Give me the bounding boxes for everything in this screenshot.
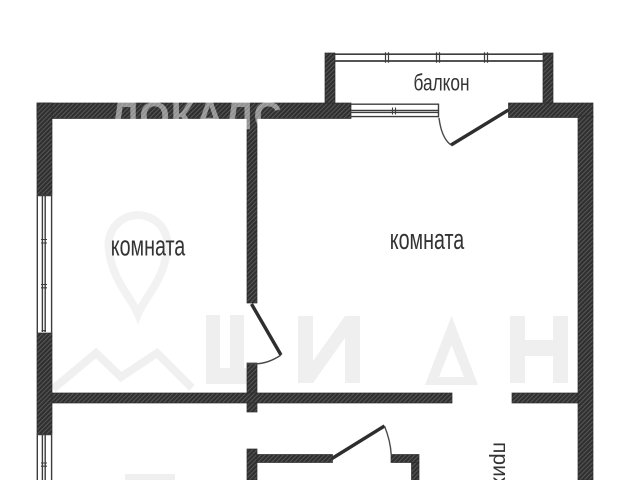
svg-text:ЛОКАЛС: ЛОКАЛС [111,95,283,138]
svg-text:балкон: балкон [414,71,470,96]
svg-text:комната: комната [390,224,465,256]
svg-text:прихожая: прихожая [489,442,512,480]
svg-text:комната: комната [111,231,186,263]
